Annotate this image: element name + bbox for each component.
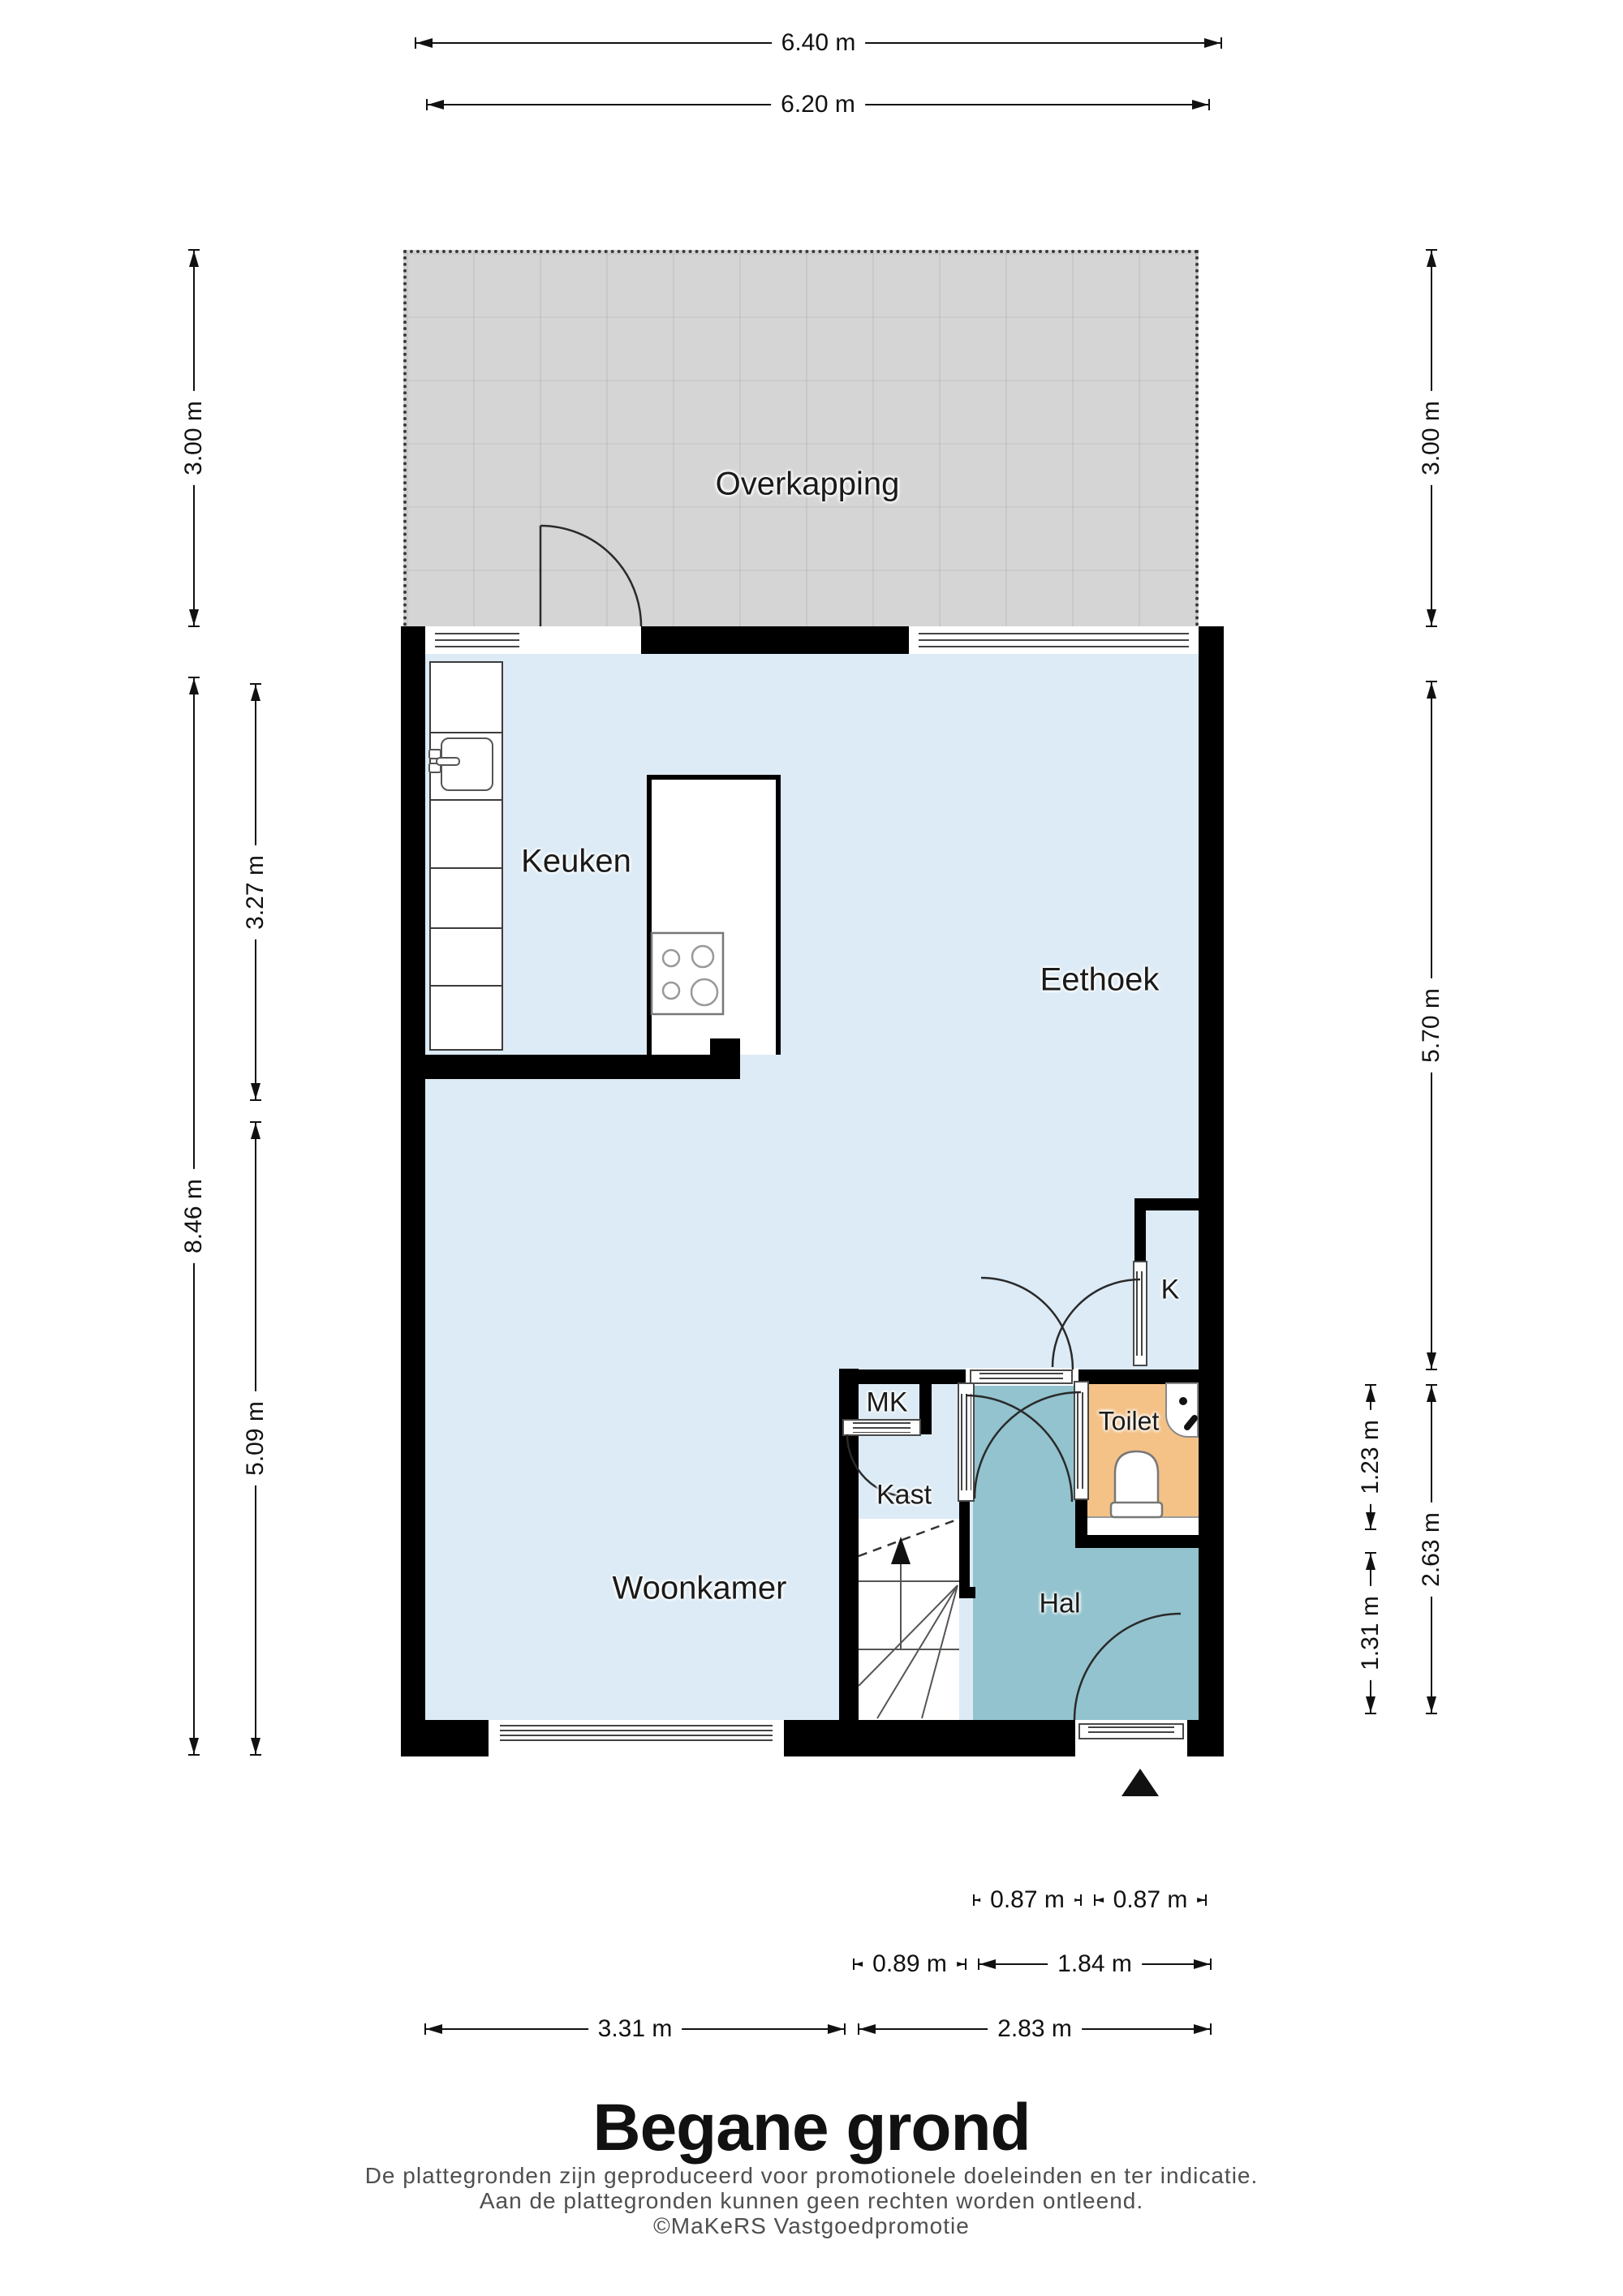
room-label-k: K — [1161, 1275, 1180, 1306]
outer-wall-right — [1199, 626, 1224, 1756]
hal-floor — [1075, 1548, 1199, 1720]
toilet-bottom-wall — [1075, 1535, 1224, 1548]
window — [489, 1720, 784, 1756]
counter-divider — [431, 985, 502, 987]
k-closet-door — [1133, 1261, 1147, 1366]
door-opening-garden — [527, 626, 641, 654]
mk-right-wall — [919, 1384, 932, 1434]
dimension-bottom: 0.87 m — [974, 1899, 1081, 1901]
staircase — [859, 1519, 959, 1720]
dimension-width-inner: 6.20 m — [427, 104, 1209, 105]
room-label-overkapping: Overkapping — [716, 467, 900, 503]
counter-divider — [431, 732, 502, 733]
front-door — [1078, 1723, 1184, 1739]
room-label-hal: Hal — [1039, 1589, 1080, 1620]
dimension-house-depth: 8.46 m — [193, 677, 195, 1755]
stairs-wall-foot — [959, 1587, 975, 1598]
overkapping-floor — [403, 250, 1199, 626]
dimension-bottom: 0.89 m — [854, 1963, 966, 1965]
counter-divider — [431, 867, 502, 869]
dimension-bottom: 2.83 m — [859, 2028, 1211, 2030]
room-label-kast: Kast — [876, 1480, 932, 1511]
hal-floor — [973, 1386, 1075, 1720]
room-label-woonkamer: Woonkamer — [613, 1571, 787, 1607]
page-title: Begane grond — [0, 2090, 1623, 2166]
dimension-hall-toilet-depth: 2.63 m — [1431, 1385, 1432, 1713]
counter-divider — [431, 927, 502, 929]
stairs-right-wall — [959, 1502, 970, 1598]
kitchen-counter — [429, 661, 503, 1051]
room-label-keuken: Keuken — [521, 844, 631, 880]
dimension-overkapping-depth: 3.00 m — [193, 250, 195, 626]
mk-door — [842, 1419, 921, 1436]
hall-door — [958, 1382, 975, 1502]
dimension-hall-depth: 1.31 m — [1370, 1553, 1371, 1713]
entrance-arrow-icon — [1121, 1769, 1159, 1796]
floor-plan: Overkapping Keuken Eethoek Woonkamer Kas… — [0, 0, 1623, 2296]
toilet-door — [1074, 1381, 1089, 1500]
dimension-dining-depth: 5.70 m — [1431, 681, 1432, 1369]
window — [425, 626, 529, 654]
disclaimer-line-1: De plattegronden zijn geproduceerd voor … — [0, 2163, 1623, 2188]
dimension-bottom: 3.31 m — [425, 2028, 845, 2030]
dimension-bottom: 0.87 m — [1095, 1899, 1206, 1901]
dimension-toilet-depth: 1.23 m — [1370, 1385, 1371, 1529]
counter-divider — [431, 799, 502, 801]
k-closet-left-wall — [1134, 1198, 1146, 1262]
hall-dining-door — [970, 1369, 1073, 1384]
dimension-width-total: 6.40 m — [415, 42, 1221, 44]
outer-wall-left — [401, 626, 425, 1756]
room-label-eethoek: Eethoek — [1040, 962, 1160, 999]
kitchen-wall-pillar — [710, 1038, 740, 1079]
window — [909, 626, 1199, 654]
disclaimer: De plattegronden zijn geproduceerd voor … — [0, 2163, 1623, 2238]
dimension-kitchen-depth: 3.27 m — [255, 684, 256, 1100]
dimension-livingroom-depth: 5.09 m — [255, 1122, 256, 1755]
disclaimer-line-3: ©MaKeRS Vastgoedpromotie — [0, 2213, 1623, 2238]
toilet-floor — [1087, 1381, 1199, 1535]
dimension-overkapping-depth-right: 3.00 m — [1431, 250, 1432, 626]
toilet-step — [1087, 1516, 1199, 1535]
kitchen-island — [647, 775, 781, 1055]
disclaimer-line-2: Aan de plattegronden kunnen geen rechten… — [0, 2188, 1623, 2213]
room-label-mk: MK — [867, 1387, 908, 1419]
room-label-toilet: Toilet — [1099, 1407, 1160, 1437]
dimension-bottom: 1.84 m — [979, 1963, 1211, 1965]
kitchen-wall — [401, 1055, 740, 1079]
